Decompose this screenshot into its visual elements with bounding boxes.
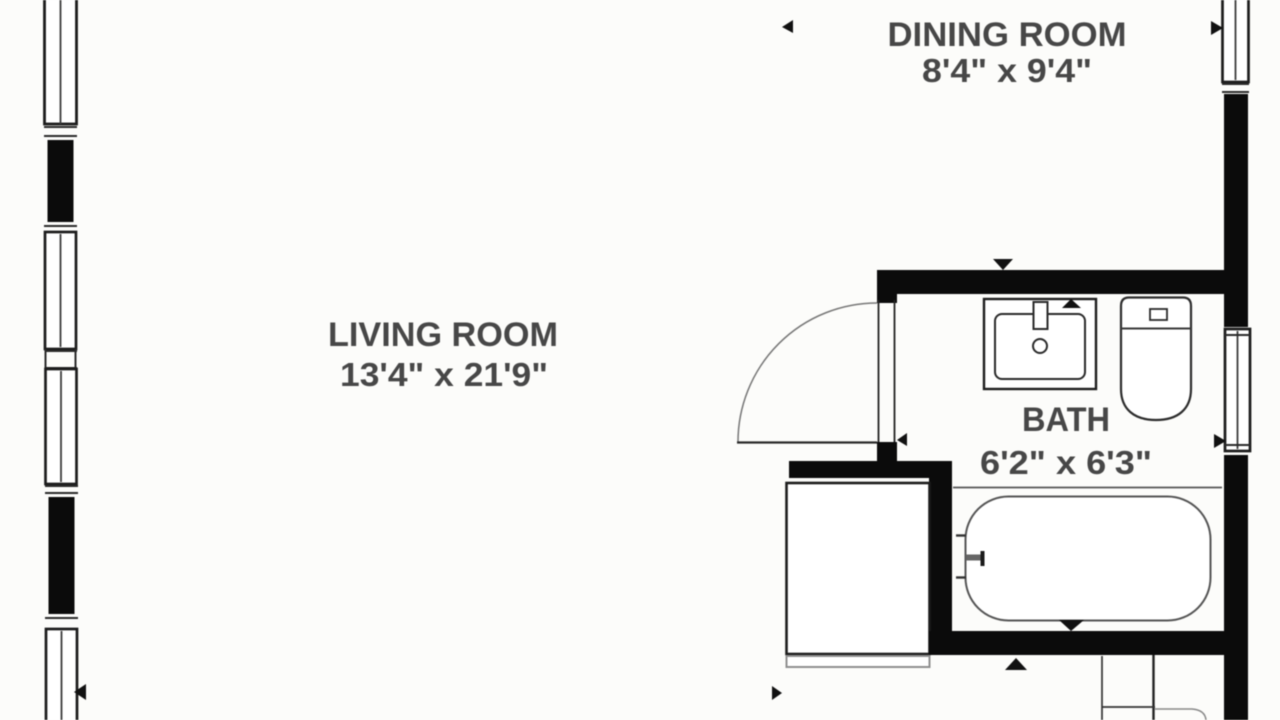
svg-text:6'2" x 6'3": 6'2" x 6'3" (980, 444, 1152, 481)
svg-text:LIVING ROOM: LIVING ROOM (328, 316, 558, 354)
svg-text:8'4" x 9'4": 8'4" x 9'4" (922, 52, 1092, 89)
svg-text:BATH: BATH (1022, 401, 1110, 439)
svg-text:DINING ROOM: DINING ROOM (888, 16, 1127, 54)
svg-text:13'4" x 21'9": 13'4" x 21'9" (340, 356, 548, 393)
